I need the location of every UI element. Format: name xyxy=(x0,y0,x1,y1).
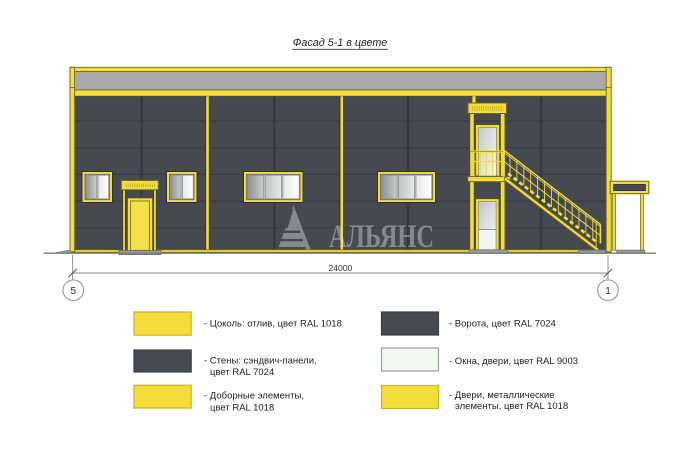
svg-text:цвет RAL 1018: цвет RAL 1018 xyxy=(210,402,274,413)
svg-text:- Доборные элементы,: - Доборные элементы, xyxy=(204,391,304,402)
svg-text:- Двери, металлические: - Двери, металлические xyxy=(449,390,554,401)
svg-text:- Цоколь: отлив, цвет RAL 1018: - Цоколь: отлив, цвет RAL 1018 xyxy=(204,318,342,329)
svg-text:Фасад 5-1 в цвете: Фасад 5-1 в цвете xyxy=(293,37,388,49)
svg-text:24000: 24000 xyxy=(328,263,352,273)
svg-text:- Ворота, цвет RAL 7024: - Ворота, цвет RAL 7024 xyxy=(449,318,556,329)
svg-text:элементы, цвет RAL 1018: элементы, цвет RAL 1018 xyxy=(455,401,568,412)
svg-text:5: 5 xyxy=(71,286,77,297)
svg-text:1: 1 xyxy=(605,286,611,297)
svg-text:- Окна, двери, цвет RAL 9003: - Окна, двери, цвет RAL 9003 xyxy=(449,356,578,367)
svg-text:цвет RAL 7024: цвет RAL 7024 xyxy=(210,367,274,378)
svg-text:- Стены: сэндвич-панели,: - Стены: сэндвич-панели, xyxy=(204,355,317,366)
